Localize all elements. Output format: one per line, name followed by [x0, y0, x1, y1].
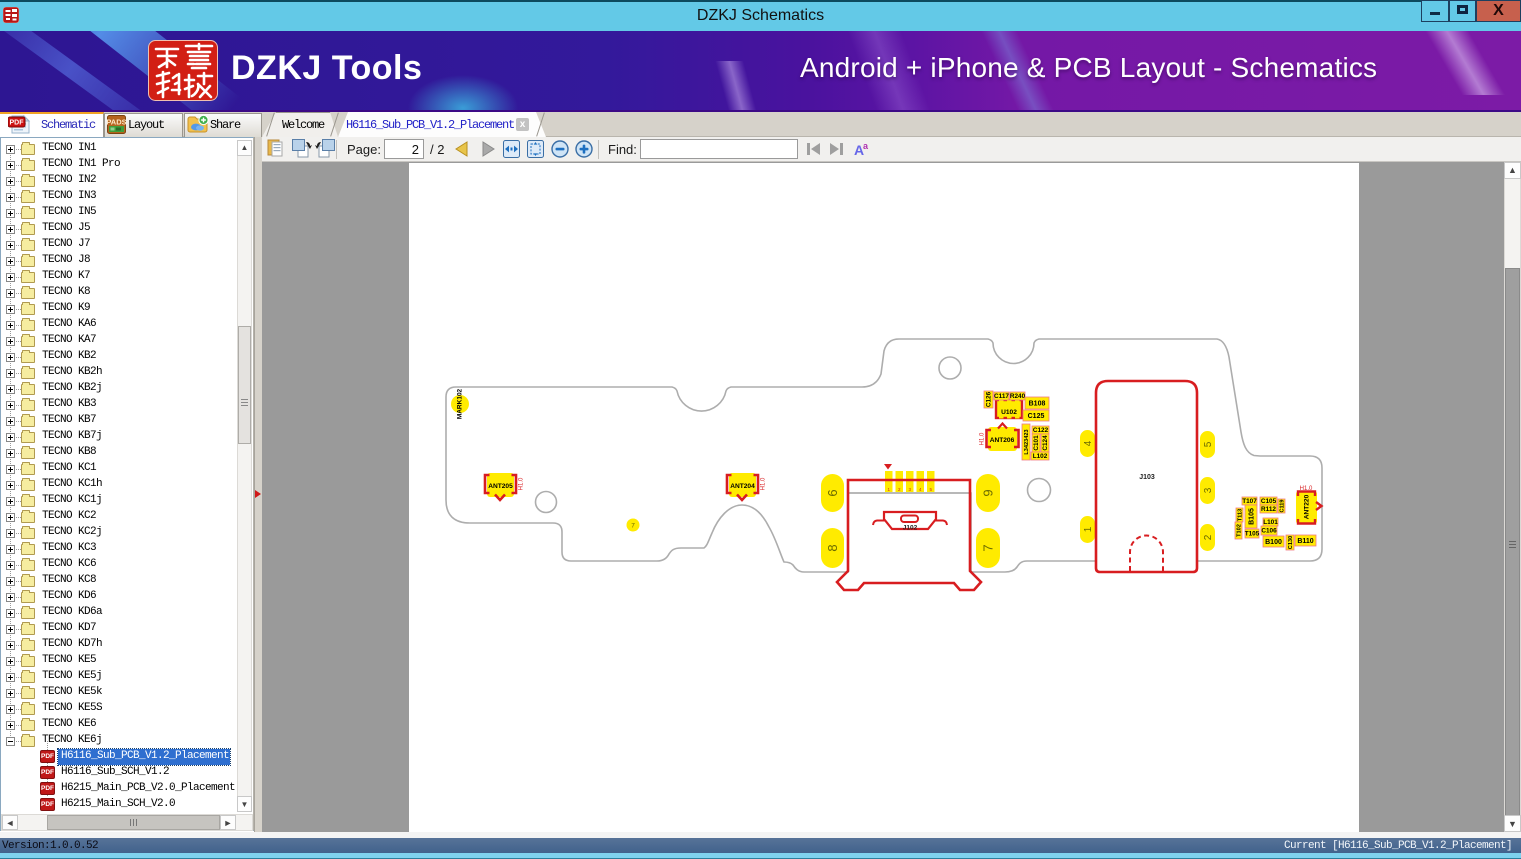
- svg-text:B100: B100: [1265, 539, 1282, 546]
- svg-text:ANT205: ANT205: [488, 483, 513, 490]
- svg-text:C101: C101: [1033, 435, 1040, 451]
- svg-text:H1.0: H1.0: [519, 477, 525, 490]
- svg-text:7: 7: [981, 544, 996, 551]
- svg-text:R112: R112: [1261, 506, 1276, 513]
- svg-text:L101: L101: [1263, 519, 1278, 526]
- svg-text:C106: C106: [1261, 528, 1277, 535]
- svg-text:PADS: PADS: [107, 118, 126, 127]
- svg-text:B110: B110: [1297, 538, 1313, 545]
- svg-text:PDF: PDF: [10, 120, 25, 127]
- svg-text:R240: R240: [1010, 393, 1026, 400]
- svg-text:MARK102: MARK102: [456, 388, 463, 419]
- svg-text:J102: J102: [903, 525, 918, 532]
- svg-text:U102: U102: [1001, 409, 1017, 416]
- svg-text:C126: C126: [986, 391, 993, 407]
- svg-text:H1.0: H1.0: [1300, 486, 1313, 492]
- svg-text:C124: C124: [1042, 435, 1049, 451]
- svg-text:2: 2: [1203, 534, 1214, 540]
- svg-text:8: 8: [825, 544, 840, 551]
- svg-text:4: 4: [1083, 440, 1094, 446]
- svg-text:J103: J103: [1139, 474, 1155, 481]
- svg-text:L102: L102: [1033, 453, 1048, 460]
- svg-text:C130: C130: [1288, 536, 1294, 549]
- svg-text:ANT206: ANT206: [990, 437, 1015, 444]
- svg-text:ANT220: ANT220: [1303, 494, 1310, 519]
- svg-text:C122: C122: [1033, 427, 1049, 434]
- svg-text:7: 7: [631, 523, 635, 530]
- svg-text:T105: T105: [1245, 531, 1260, 538]
- svg-text:T113: T113: [1237, 509, 1243, 521]
- svg-text:5: 5: [1203, 441, 1214, 447]
- svg-text:6: 6: [825, 489, 840, 496]
- svg-text:H1.0: H1.0: [761, 477, 767, 490]
- svg-text:C125: C125: [1028, 413, 1045, 420]
- svg-text:ANT204: ANT204: [730, 483, 755, 490]
- svg-text:L3423423: L3423423: [1024, 429, 1030, 454]
- svg-text:B108: B108: [1029, 400, 1046, 407]
- svg-text:9: 9: [981, 489, 996, 496]
- svg-text:B105: B105: [1248, 508, 1255, 525]
- svg-text:C117: C117: [994, 393, 1009, 400]
- svg-text:1: 1: [1083, 526, 1094, 532]
- svg-text:C119: C119: [1279, 499, 1285, 512]
- svg-text:T107: T107: [1242, 498, 1257, 505]
- svg-text:C105: C105: [1261, 498, 1277, 505]
- svg-text:a: a: [863, 141, 869, 151]
- svg-text:3: 3: [1203, 487, 1214, 493]
- svg-text:T102: T102: [1236, 524, 1242, 537]
- svg-text:H1.0: H1.0: [980, 432, 986, 445]
